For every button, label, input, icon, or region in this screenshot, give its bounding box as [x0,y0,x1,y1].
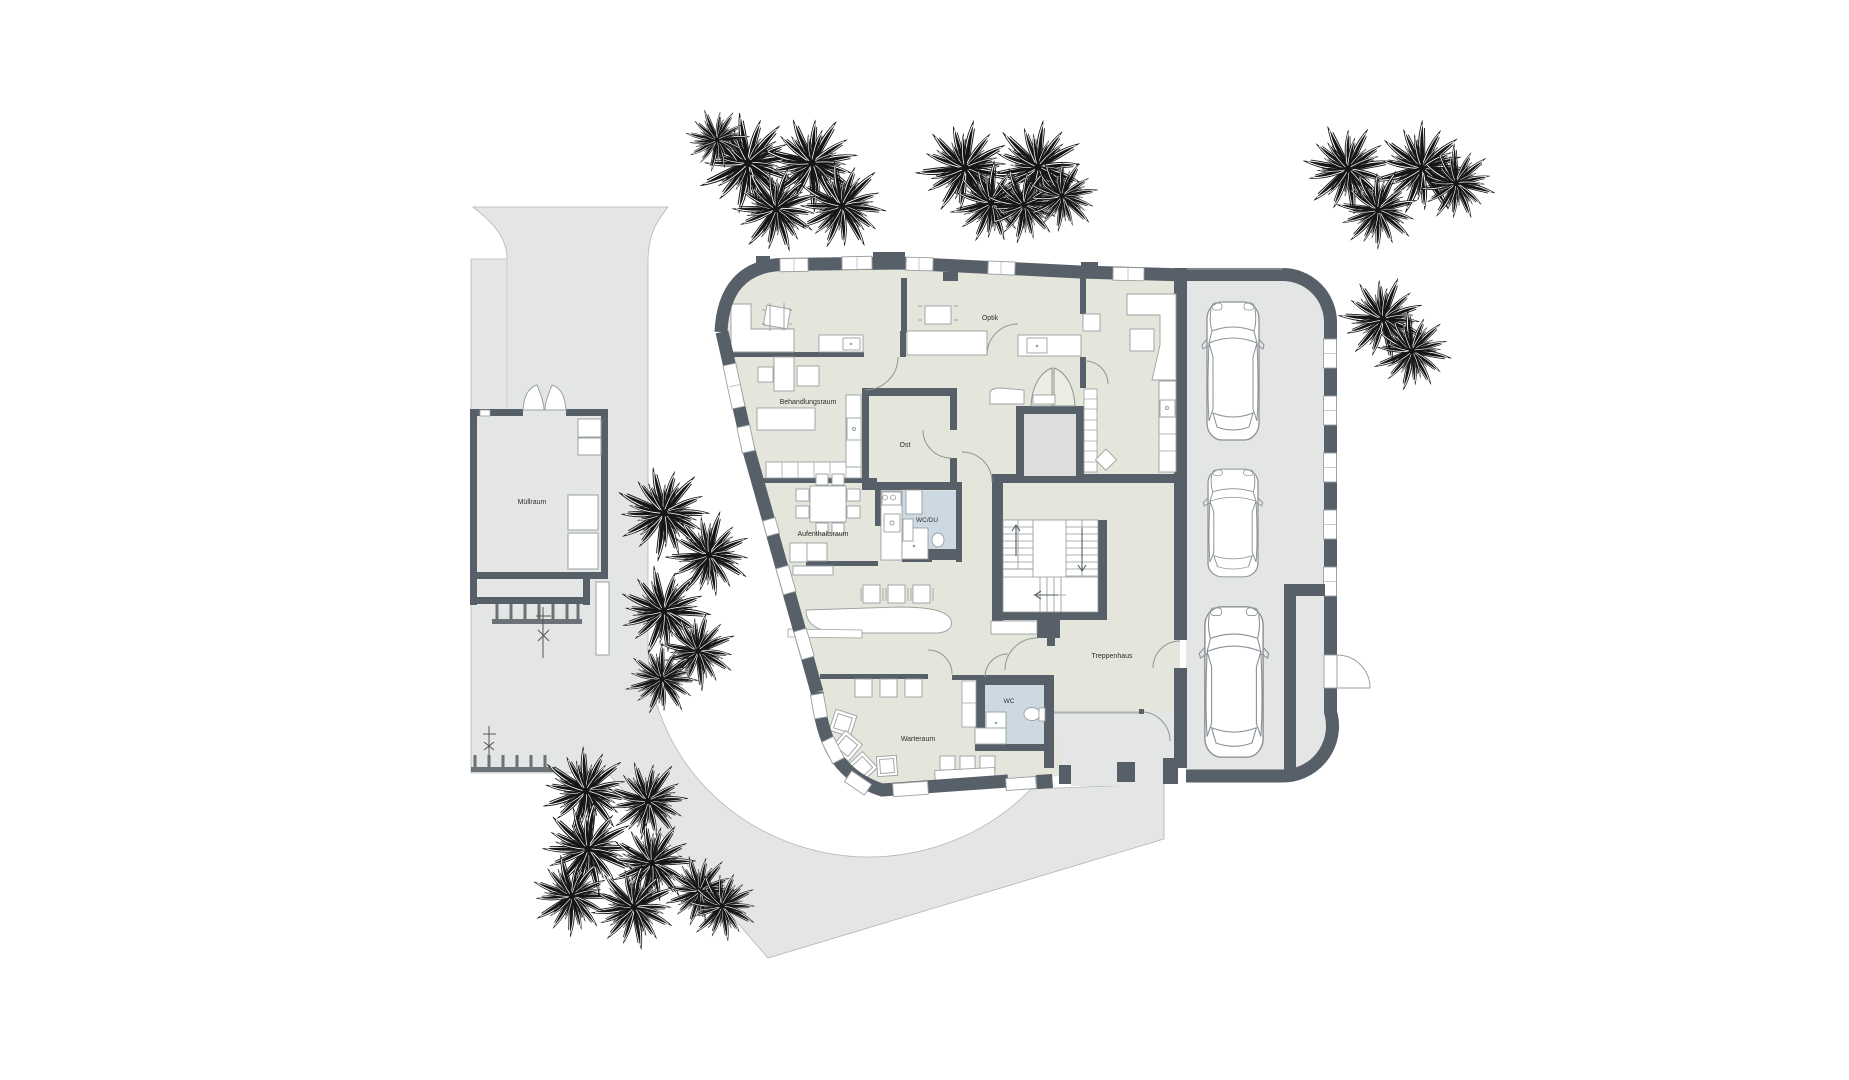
svg-text:Aufenthaltsraum: Aufenthaltsraum [798,531,849,538]
svg-text:WC: WC [1004,698,1015,705]
svg-text:Behandlungsraum: Behandlungsraum [780,399,837,406]
svg-text:Ost: Ost [900,442,911,449]
svg-text:Müllraum: Müllraum [518,499,547,506]
svg-text:Optik: Optik [982,315,999,322]
svg-text:Warteraum: Warteraum [901,736,936,743]
svg-text:WC/DU: WC/DU [916,517,938,524]
svg-text:Treppenhaus: Treppenhaus [1092,653,1133,660]
